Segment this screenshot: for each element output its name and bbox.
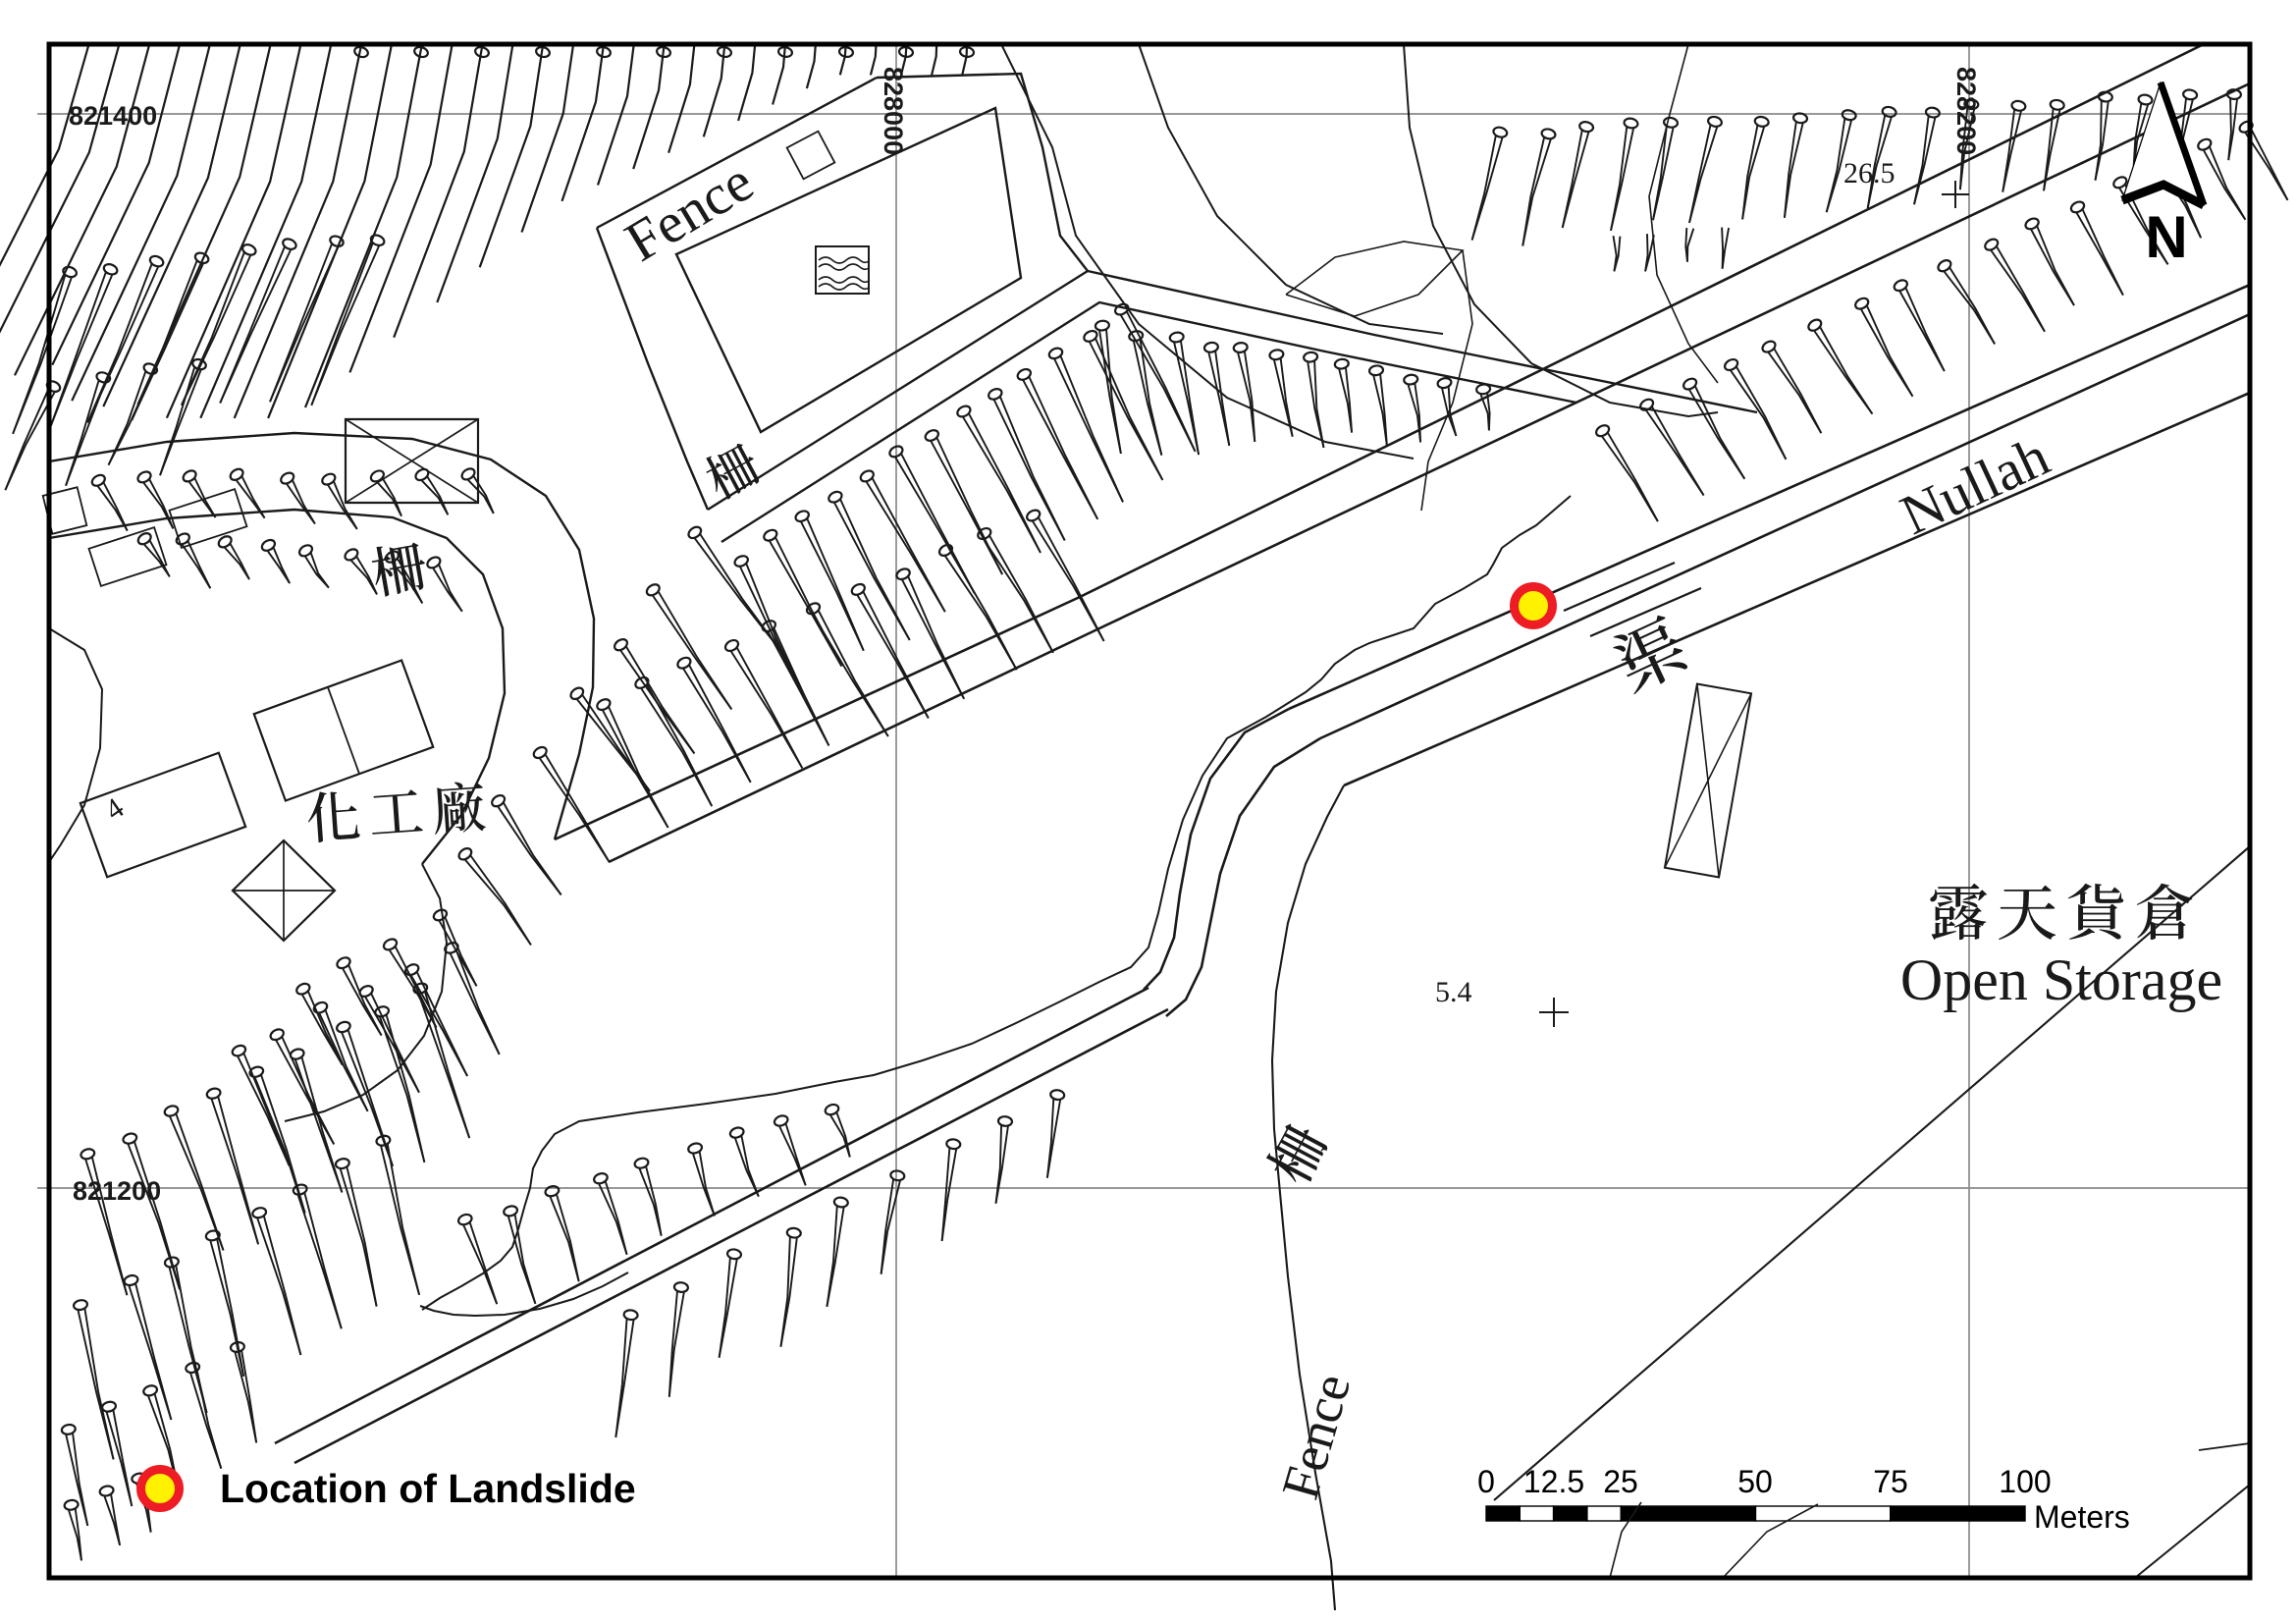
svg-text:5.4: 5.4: [1435, 976, 1472, 1008]
svg-text:Meters: Meters: [2034, 1499, 2130, 1535]
svg-text:25: 25: [1603, 1464, 1638, 1499]
svg-text:100: 100: [1999, 1464, 2051, 1499]
svg-text:0: 0: [1477, 1464, 1495, 1499]
svg-text:Open Storage: Open Storage: [1900, 947, 2222, 1012]
svg-text:Location of Landslide: Location of Landslide: [220, 1466, 636, 1511]
svg-text:26.5: 26.5: [1843, 157, 1896, 189]
svg-text:75: 75: [1873, 1464, 1908, 1499]
svg-text:821400: 821400: [69, 101, 157, 131]
svg-text:12.5: 12.5: [1523, 1464, 1584, 1499]
svg-text:828000: 828000: [879, 67, 908, 155]
svg-text:50: 50: [1737, 1464, 1773, 1499]
svg-text:N: N: [2145, 204, 2187, 270]
